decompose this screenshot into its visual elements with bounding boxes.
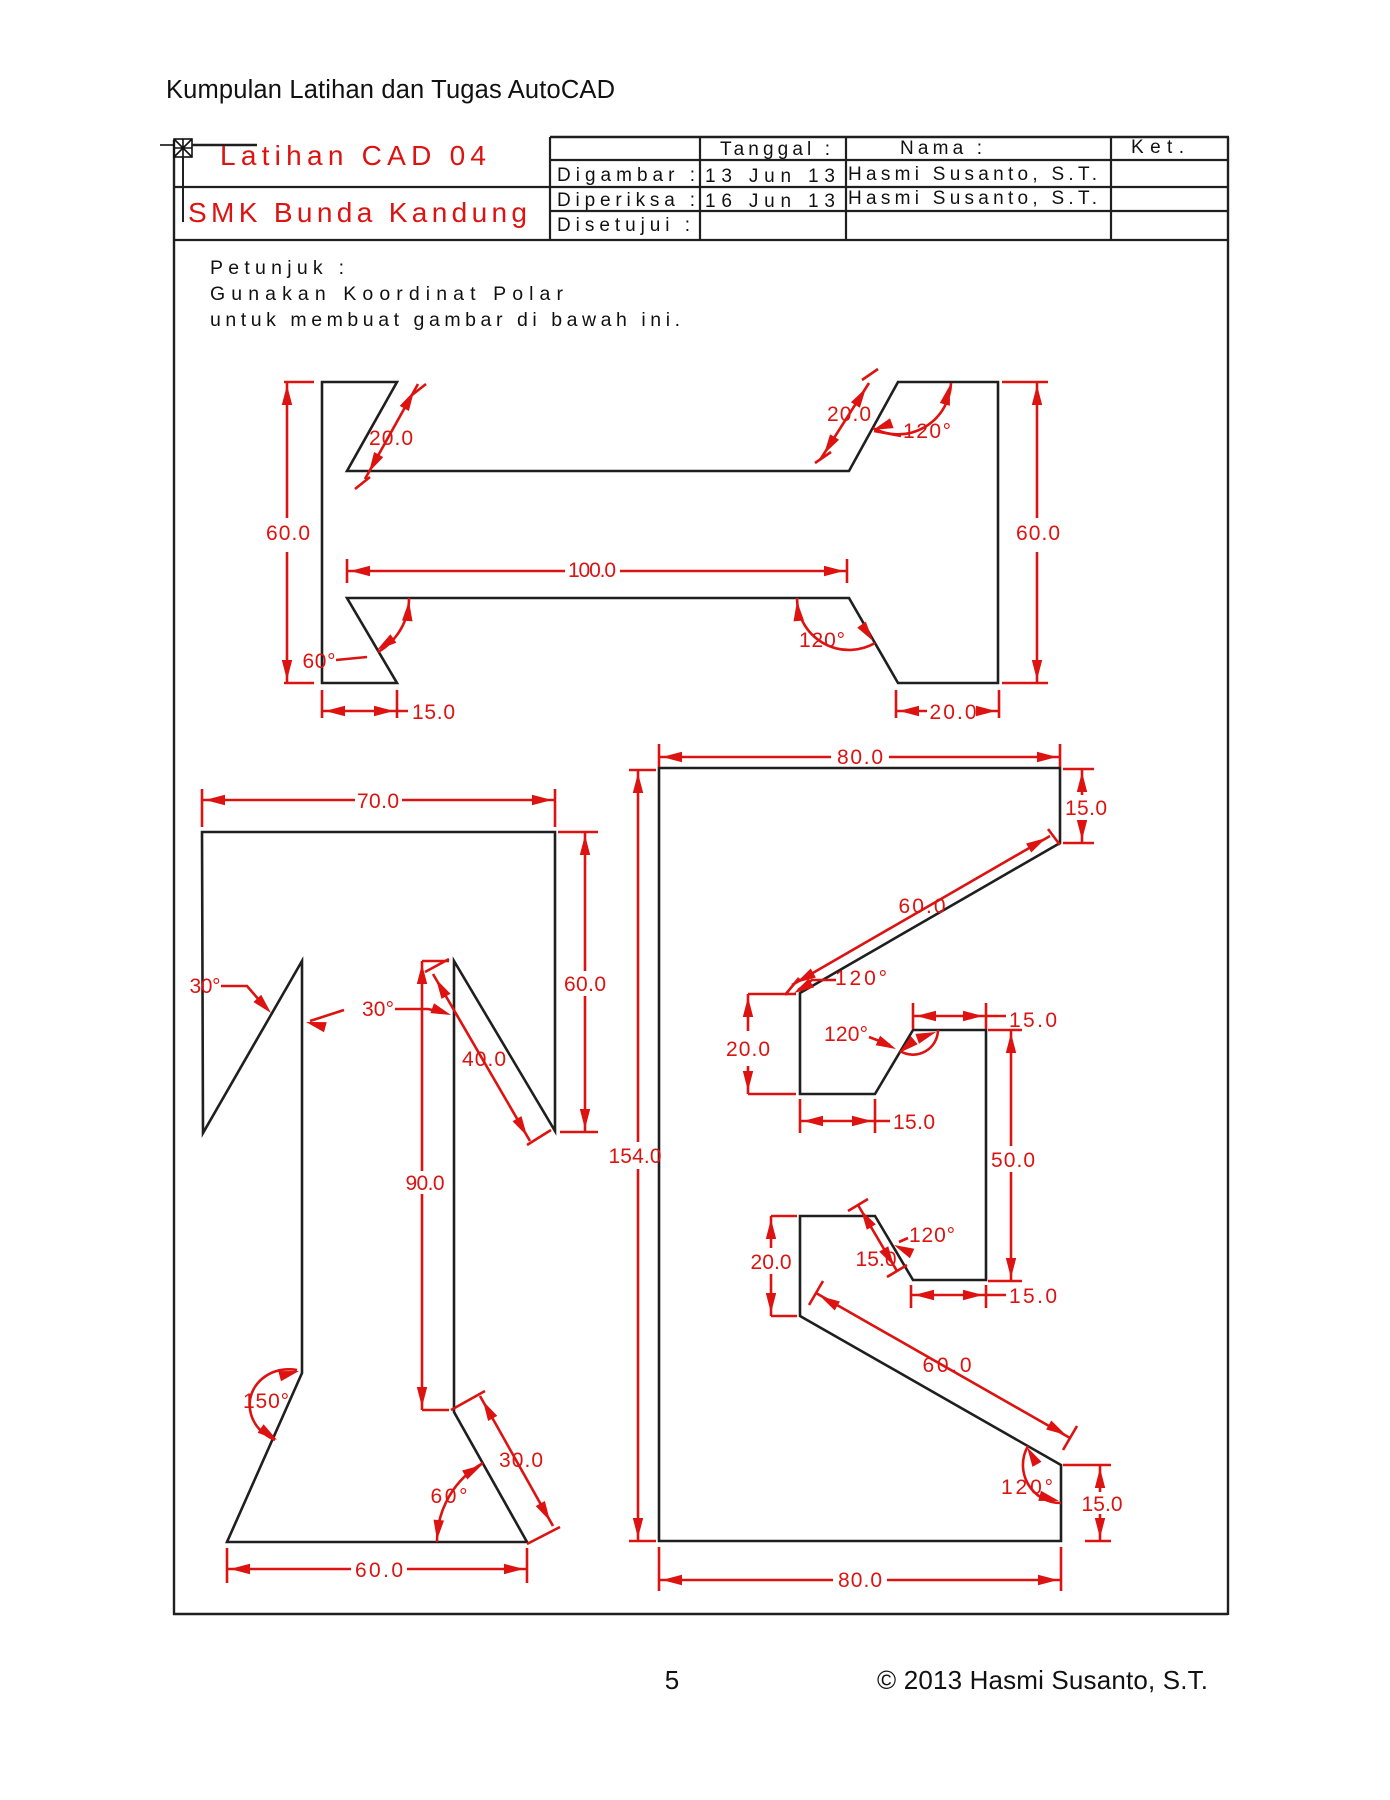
- svg-text:15.0: 15.0: [893, 1111, 935, 1134]
- svg-text:60.0: 60.0: [1016, 522, 1060, 545]
- svg-text:Gunakan Koordinat Polar: Gunakan Koordinat Polar: [210, 283, 564, 305]
- svg-text:Petunjuk :: Petunjuk :: [210, 257, 344, 279]
- svg-text:Nama :: Nama :: [900, 138, 982, 159]
- svg-text:60.0: 60.0: [923, 1354, 972, 1377]
- svg-text:Hasmi Susanto, S.T.: Hasmi Susanto, S.T.: [848, 188, 1097, 209]
- svg-text:120°: 120°: [824, 1023, 868, 1046]
- svg-text:30°: 30°: [362, 998, 394, 1021]
- svg-text:15.0: 15.0: [1009, 1285, 1057, 1308]
- svg-text:Latihan CAD 04: Latihan CAD 04: [220, 140, 486, 171]
- svg-text:Digambar :: Digambar :: [557, 165, 695, 186]
- svg-text:80.0: 80.0: [837, 746, 883, 769]
- svg-text:15.0: 15.0: [1065, 797, 1107, 820]
- svg-text:154.0: 154.0: [609, 1145, 662, 1168]
- svg-text:SMK Bunda Kandung: SMK Bunda Kandung: [188, 197, 527, 228]
- svg-text:120°: 120°: [903, 420, 951, 443]
- svg-text:70.0: 70.0: [357, 790, 399, 813]
- svg-text:80.0: 80.0: [838, 1569, 882, 1592]
- svg-text:20.0: 20.0: [726, 1038, 770, 1061]
- svg-text:Disetujui :: Disetujui :: [557, 215, 690, 236]
- svg-text:15.0: 15.0: [1082, 1493, 1123, 1516]
- svg-text:20.0: 20.0: [369, 427, 413, 450]
- svg-text:60.0: 60.0: [355, 1559, 403, 1582]
- svg-text:120°: 120°: [835, 967, 887, 990]
- svg-text:20.0: 20.0: [930, 701, 977, 724]
- svg-text:Diperiksa :: Diperiksa :: [557, 190, 695, 211]
- svg-text:16 Jun 13: 16 Jun 13: [705, 191, 835, 212]
- svg-text:30°: 30°: [190, 975, 221, 998]
- svg-text:© 2013 Hasmi Susanto, S.T.: © 2013 Hasmi Susanto, S.T.: [877, 1665, 1208, 1695]
- svg-text:20.0: 20.0: [751, 1251, 792, 1274]
- svg-text:15.0: 15.0: [1009, 1009, 1057, 1032]
- svg-text:120°: 120°: [799, 629, 845, 652]
- svg-text:90.0: 90.0: [406, 1172, 445, 1195]
- svg-text:untuk membuat gambar di bawah: untuk membuat gambar di bawah ini.: [210, 309, 680, 331]
- svg-text:120°: 120°: [909, 1224, 955, 1247]
- svg-text:Ket.: Ket.: [1131, 137, 1184, 158]
- svg-text:13 Jun 13: 13 Jun 13: [705, 166, 835, 187]
- svg-text:20.0: 20.0: [827, 403, 871, 426]
- svg-text:15.0: 15.0: [856, 1248, 897, 1271]
- svg-text:Kumpulan Latihan dan Tugas Aut: Kumpulan Latihan dan Tugas AutoCAD: [166, 76, 615, 104]
- svg-text:5: 5: [665, 1665, 679, 1695]
- svg-text:15.0: 15.0: [412, 701, 455, 724]
- svg-text:Hasmi Susanto, S.T.: Hasmi Susanto, S.T.: [848, 164, 1097, 185]
- svg-text:Tanggal :: Tanggal :: [720, 139, 830, 160]
- svg-text:60.0: 60.0: [899, 895, 946, 918]
- svg-text:60.0: 60.0: [564, 973, 606, 996]
- svg-text:60.0: 60.0: [266, 522, 310, 545]
- svg-text:40.0: 40.0: [462, 1048, 506, 1071]
- svg-text:60°: 60°: [303, 650, 336, 673]
- svg-text:100.0: 100.0: [568, 559, 616, 582]
- svg-text:30.0: 30.0: [499, 1449, 543, 1472]
- svg-text:50.0: 50.0: [991, 1149, 1035, 1172]
